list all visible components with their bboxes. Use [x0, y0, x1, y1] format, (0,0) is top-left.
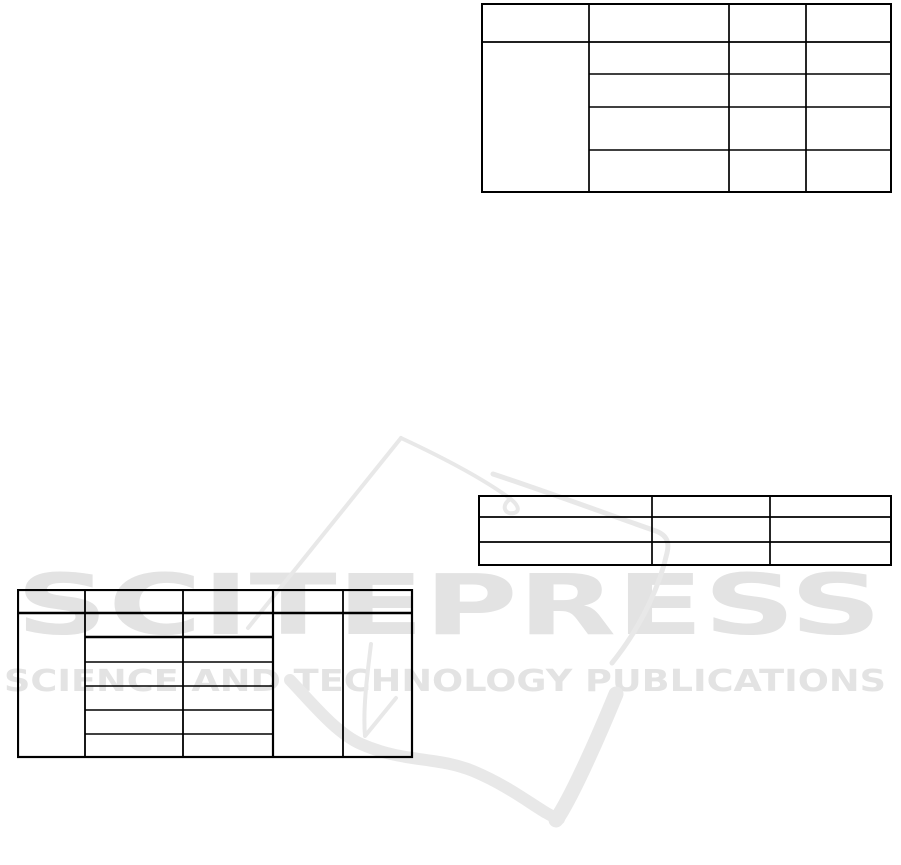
table-outer-border: [18, 590, 412, 757]
table-outer-border: [482, 4, 891, 192]
table-subrow-lines: [85, 662, 273, 734]
top-right-table: [481, 3, 893, 194]
table-row-lines: [479, 517, 891, 542]
page: SCITEPRESS SCIENCE AND TECHNOLOGY PUBLIC…: [0, 0, 901, 865]
middle-right-table: [478, 495, 893, 567]
logo-swoosh-arm: [556, 694, 616, 820]
table-column-lines: [85, 590, 343, 757]
table-outer-border: [479, 496, 891, 565]
table-row-lines: [589, 74, 891, 150]
bottom-left-table: [17, 589, 414, 759]
table-column-lines: [589, 4, 806, 192]
table-column-lines: [652, 496, 770, 565]
